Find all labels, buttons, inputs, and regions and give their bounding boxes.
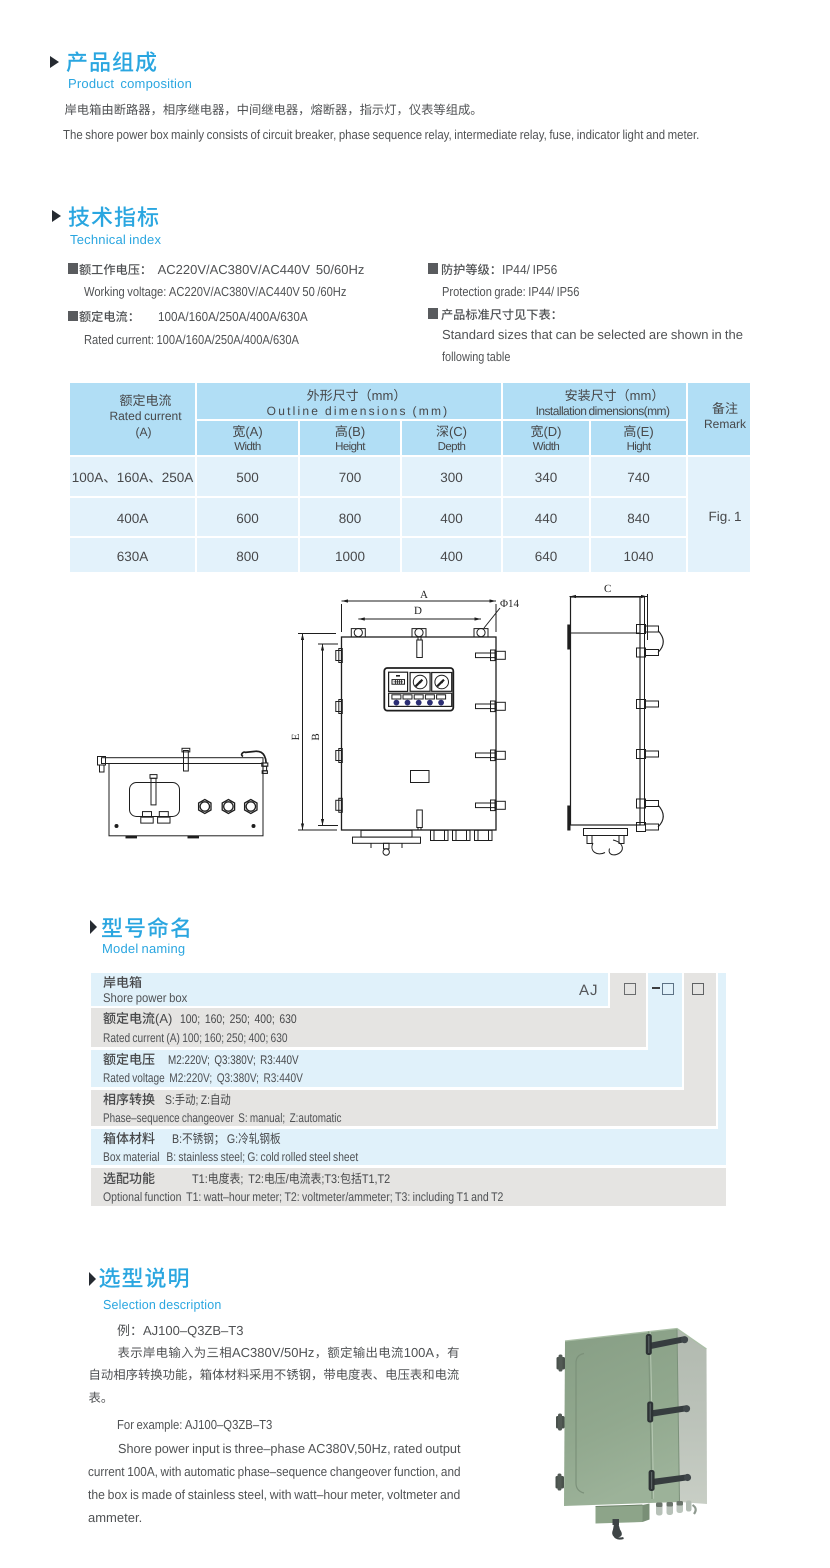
svg-text:C: C	[604, 583, 611, 595]
svg-text:A: A	[420, 589, 428, 601]
svg-text:B: B	[310, 733, 322, 740]
svg-text:Φ14: Φ14	[500, 598, 520, 610]
svg-text:D: D	[414, 605, 422, 617]
svg-text:E: E	[290, 733, 302, 740]
